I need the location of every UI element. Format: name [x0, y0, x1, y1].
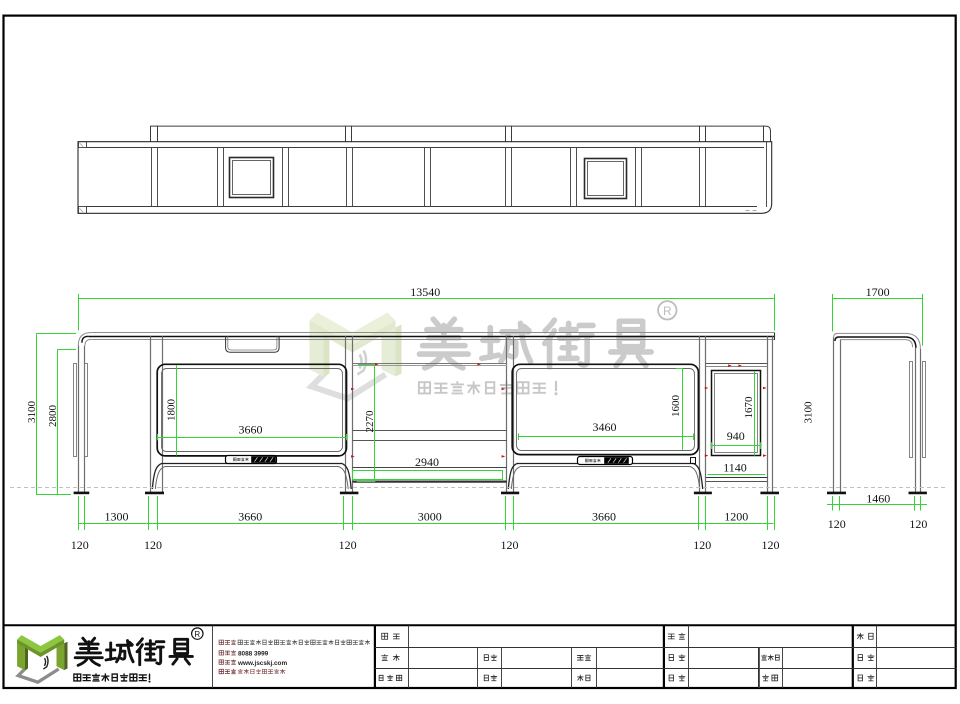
svg-text:120: 120 [693, 538, 711, 552]
svg-text:940: 940 [727, 429, 745, 443]
svg-text:1300: 1300 [105, 510, 129, 524]
svg-text:3460: 3460 [593, 420, 617, 434]
svg-text:3660: 3660 [239, 423, 263, 437]
svg-text:120: 120 [71, 538, 89, 552]
svg-text:3660: 3660 [592, 510, 616, 524]
svg-text:www.jscskj.com: www.jscskj.com [237, 660, 287, 667]
svg-text:120: 120 [828, 517, 846, 531]
svg-text:R: R [663, 304, 672, 318]
svg-text:3100: 3100 [26, 401, 38, 424]
svg-text:120: 120 [339, 538, 357, 552]
svg-text:1700: 1700 [866, 285, 890, 299]
svg-text:1460: 1460 [866, 492, 890, 506]
svg-text:1800: 1800 [165, 399, 177, 422]
svg-text:1140: 1140 [723, 461, 747, 475]
svg-text:3660: 3660 [238, 510, 262, 524]
svg-text:R: R [194, 630, 200, 639]
svg-text:120: 120 [144, 538, 162, 552]
svg-text:120: 120 [762, 538, 780, 552]
svg-text:120: 120 [501, 538, 519, 552]
svg-text:120: 120 [909, 517, 927, 531]
svg-text:1670: 1670 [743, 396, 755, 419]
svg-text:1200: 1200 [724, 510, 748, 524]
svg-text:3100: 3100 [803, 401, 815, 424]
svg-text:2270: 2270 [364, 410, 376, 433]
svg-text:8088 3999: 8088 3999 [238, 651, 269, 658]
svg-text:13540: 13540 [410, 285, 440, 299]
svg-text:3000: 3000 [418, 510, 442, 524]
svg-text:2940: 2940 [415, 455, 439, 469]
svg-text:1600: 1600 [670, 395, 682, 418]
svg-text:2800: 2800 [47, 405, 59, 428]
